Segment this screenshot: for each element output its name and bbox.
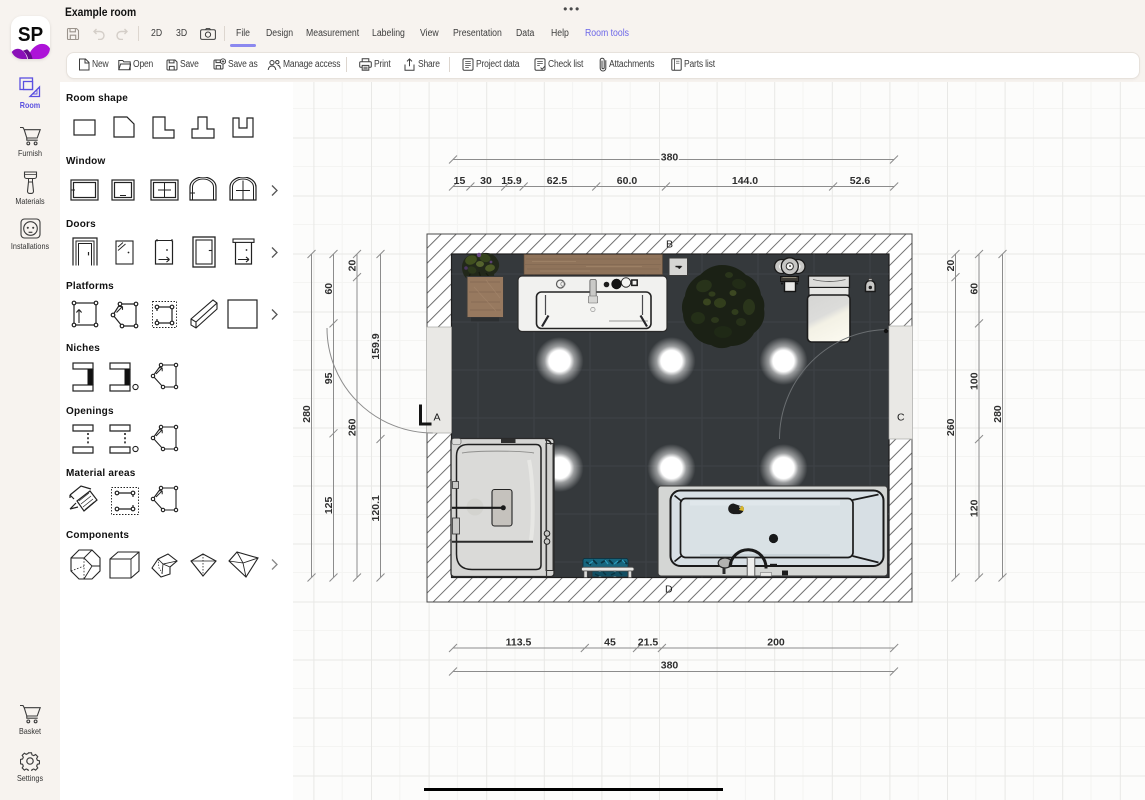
svg-text:15: 15 (454, 175, 466, 187)
svg-text:380: 380 (661, 660, 679, 672)
svg-text:120: 120 (969, 499, 981, 517)
svg-text:159.9: 159.9 (370, 333, 382, 359)
svg-text:62.5: 62.5 (547, 175, 568, 187)
svg-text:280: 280 (992, 405, 1004, 423)
svg-text:120.1: 120.1 (370, 495, 382, 521)
svg-text:60.0: 60.0 (617, 175, 638, 187)
svg-text:D: D (665, 584, 673, 596)
svg-text:SP: SP (18, 24, 43, 47)
svg-text:380: 380 (661, 152, 679, 164)
svg-text:280: 280 (301, 405, 313, 423)
svg-text:100: 100 (969, 372, 981, 390)
svg-text:260: 260 (347, 418, 359, 436)
svg-text:C: C (897, 412, 905, 424)
svg-text:20: 20 (347, 260, 359, 272)
svg-text:21.5: 21.5 (638, 637, 659, 649)
svg-text:200: 200 (767, 637, 785, 649)
svg-text:60: 60 (969, 283, 981, 295)
svg-text:15.9: 15.9 (501, 175, 522, 187)
svg-text:52.6: 52.6 (850, 175, 871, 187)
svg-text:30: 30 (480, 175, 492, 187)
svg-text:B: B (666, 239, 673, 251)
svg-text:113.5: 113.5 (506, 637, 532, 649)
svg-text:45: 45 (604, 637, 616, 649)
svg-text:95: 95 (323, 372, 335, 384)
svg-text:260: 260 (945, 418, 957, 436)
svg-text:144.0: 144.0 (732, 175, 758, 187)
svg-text:60: 60 (323, 283, 335, 295)
svg-text:A: A (434, 412, 441, 424)
svg-text:20: 20 (945, 260, 957, 272)
svg-text:125: 125 (323, 496, 335, 514)
